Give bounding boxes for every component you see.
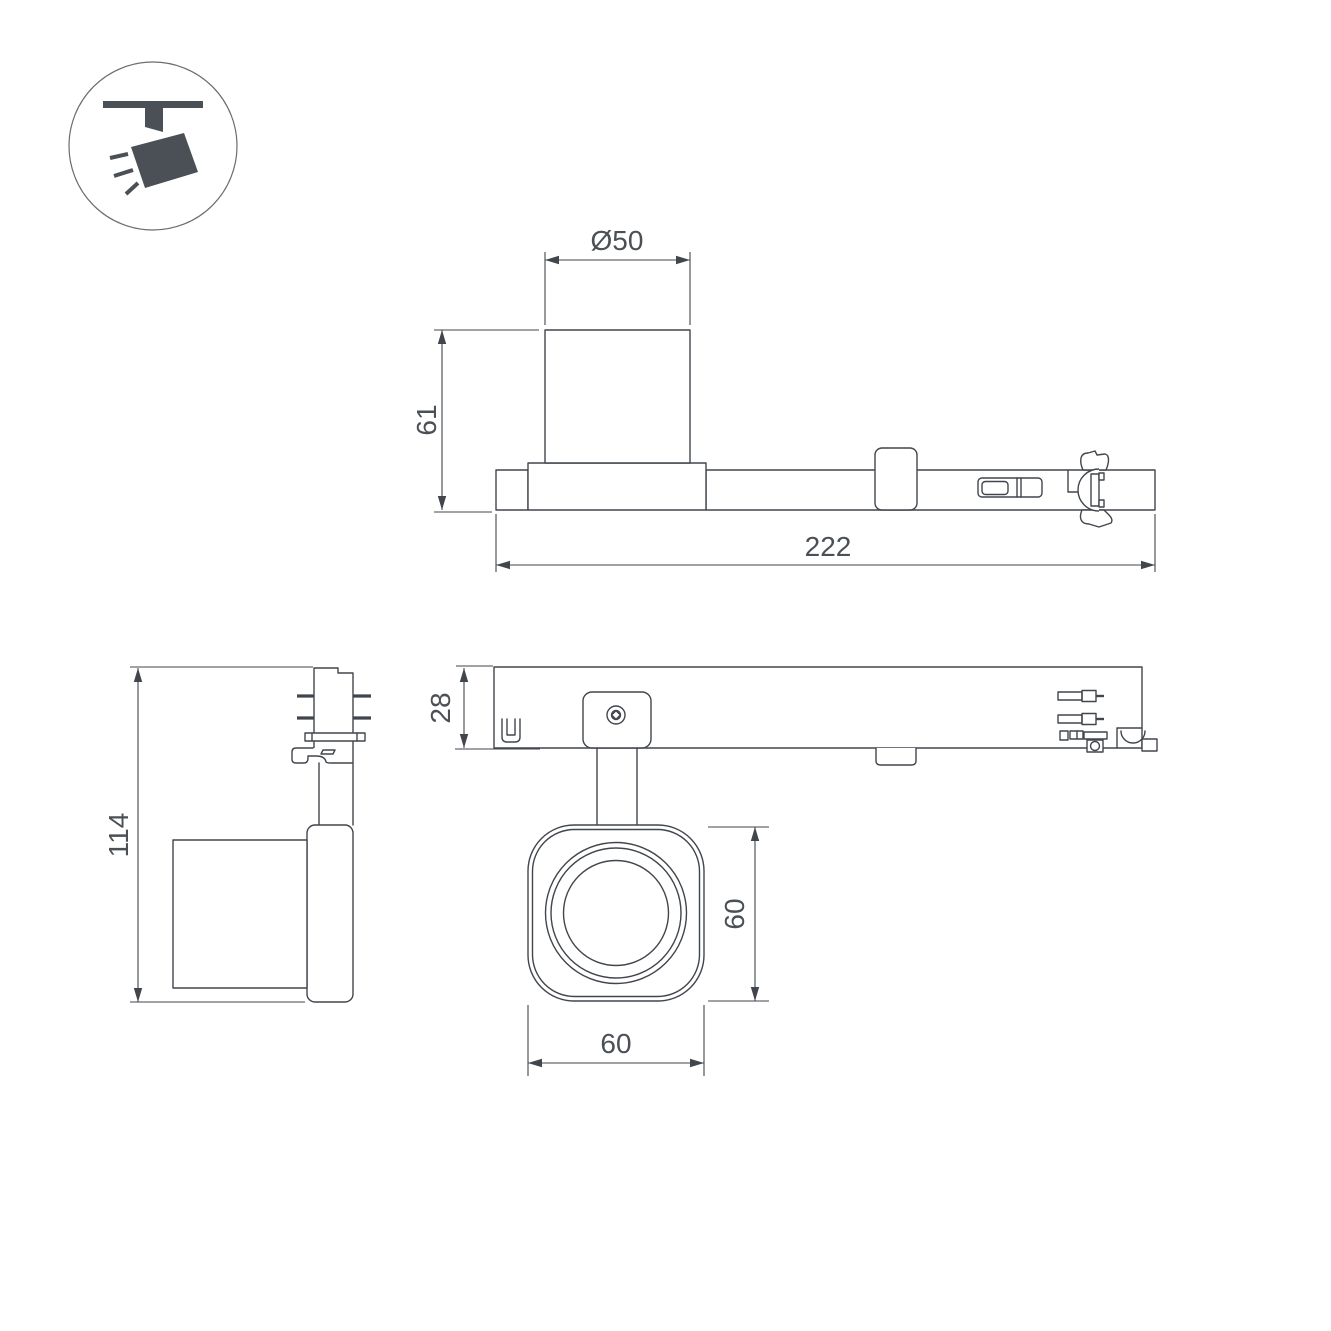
rail-bottom-view: 28 xyxy=(425,666,1157,826)
dim-length-222: 222 xyxy=(496,514,1155,572)
side-view: 114 xyxy=(103,667,371,1002)
dim-height-label: 61 xyxy=(411,404,442,435)
slider-switch xyxy=(978,478,1042,497)
mount-hook xyxy=(292,748,352,763)
dim-head-height-label: 60 xyxy=(719,898,750,929)
head-mount-body xyxy=(307,825,353,1002)
icon-track-bar xyxy=(103,101,203,108)
drawing-svg: Ø50 61 222 xyxy=(0,0,1331,1331)
dim-total-height-label: 114 xyxy=(103,813,134,858)
dim-head-width-60: 60 xyxy=(528,1005,704,1076)
dim-diameter-50: Ø50 xyxy=(545,225,690,325)
technical-drawing: Ø50 61 222 xyxy=(0,0,1331,1331)
lamp-housing xyxy=(173,840,307,988)
head-front-view: 60 60 xyxy=(528,825,769,1076)
dim-head-width-label: 60 xyxy=(600,1028,631,1059)
dim-length-label: 222 xyxy=(805,531,852,562)
head-bezel-outer xyxy=(528,825,704,1001)
rail-tab xyxy=(876,748,916,765)
cylinder-body xyxy=(545,330,690,463)
dim-rail-depth-label: 28 xyxy=(425,692,456,723)
dim-head-height-60: 60 xyxy=(708,827,769,1001)
dim-diameter-label: Ø50 xyxy=(591,225,644,256)
track-spotlight-icon xyxy=(69,62,237,230)
top-view: Ø50 61 222 xyxy=(411,225,1155,572)
rail-boss xyxy=(875,448,917,510)
